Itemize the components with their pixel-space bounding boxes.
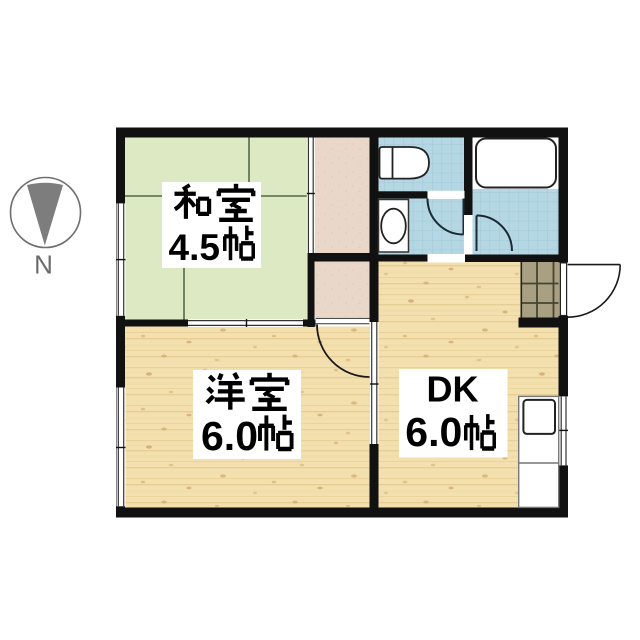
- svg-text:6.0: 6.0: [201, 413, 258, 459]
- svg-text:N: N: [34, 250, 53, 280]
- svg-text:DK: DK: [427, 369, 479, 410]
- svg-text:4.5: 4.5: [169, 227, 220, 268]
- svg-text:6.0: 6.0: [405, 409, 462, 455]
